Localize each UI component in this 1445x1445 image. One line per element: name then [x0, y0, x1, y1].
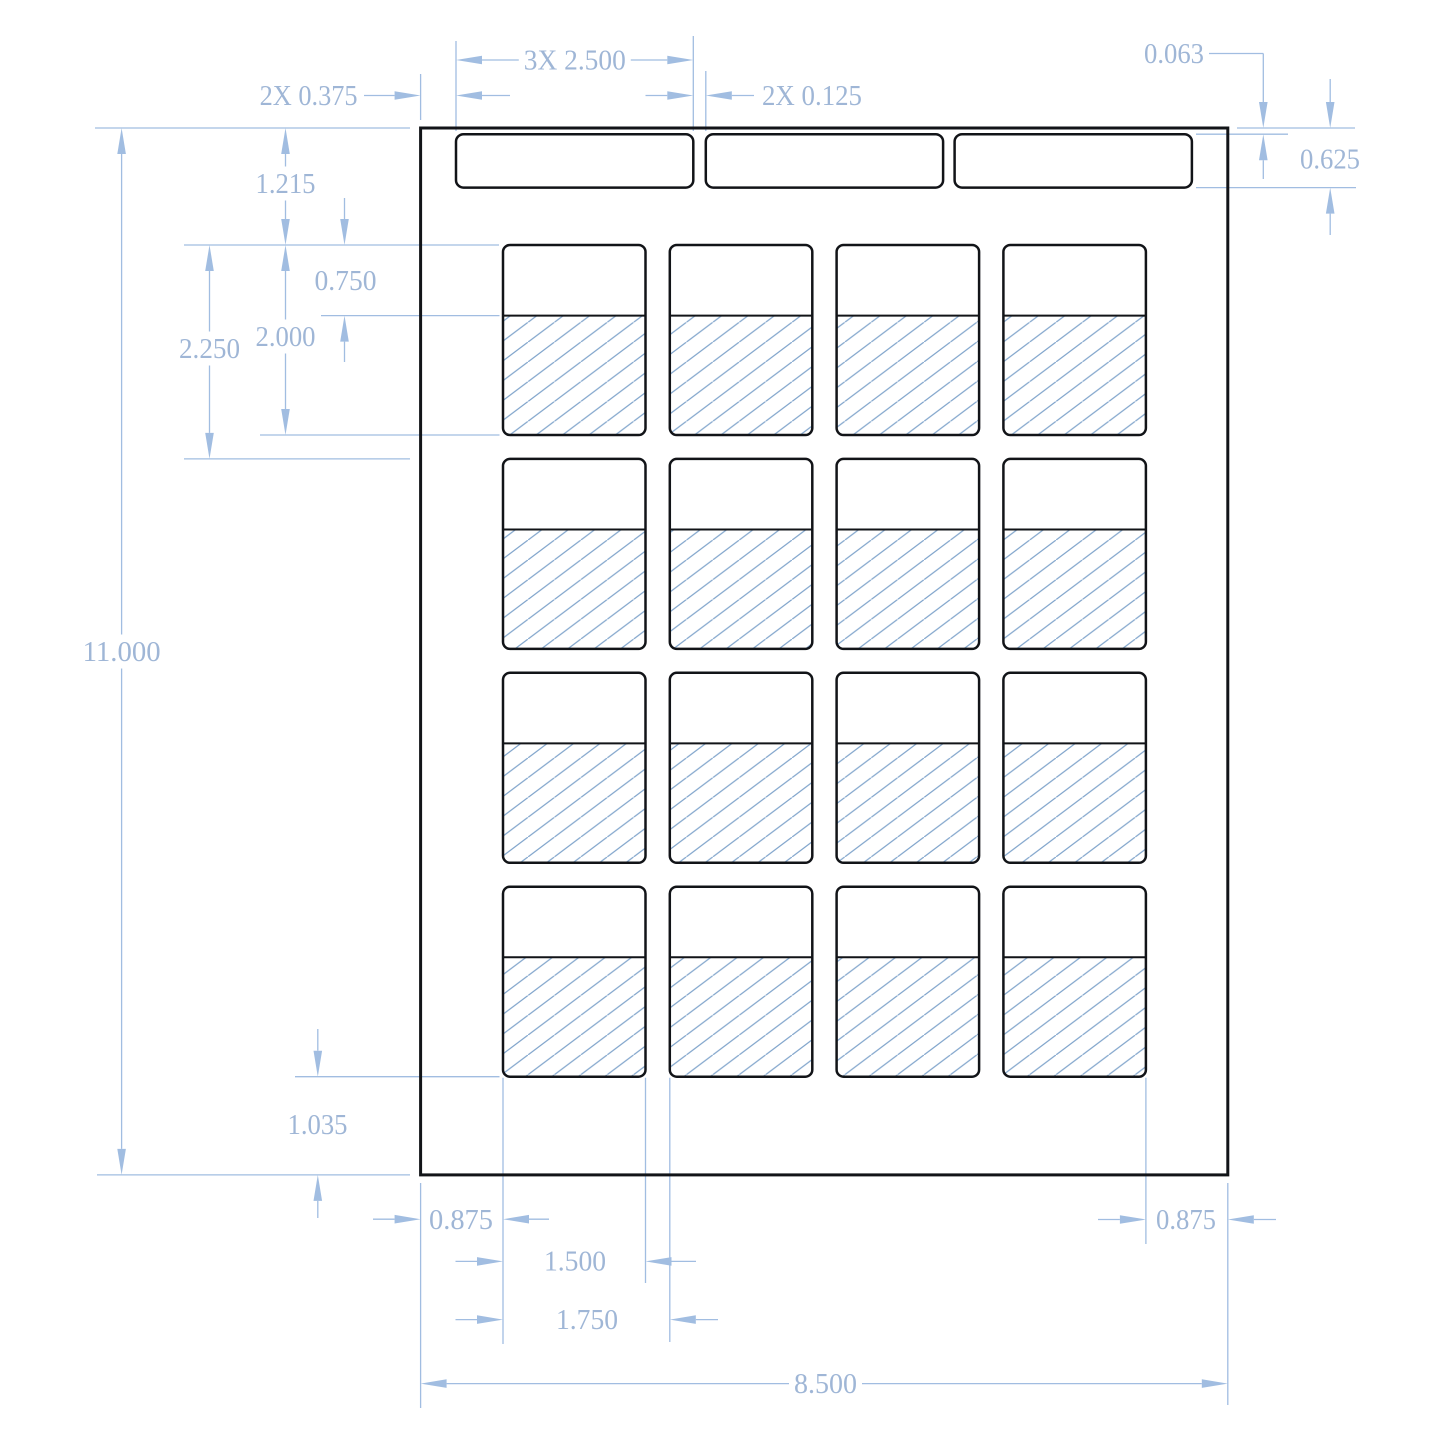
svg-text:0.750: 0.750: [315, 266, 377, 297]
svg-text:0.875: 0.875: [1156, 1205, 1216, 1236]
svg-text:11.000: 11.000: [83, 637, 161, 668]
svg-text:2X 0.375: 2X 0.375: [260, 81, 358, 112]
svg-text:1.750: 1.750: [556, 1305, 618, 1336]
svg-text:2.250: 2.250: [179, 334, 240, 365]
svg-text:2.000: 2.000: [256, 322, 316, 353]
svg-text:0.063: 0.063: [1144, 39, 1204, 70]
svg-text:1.500: 1.500: [544, 1246, 606, 1277]
svg-text:0.875: 0.875: [429, 1205, 493, 1236]
svg-text:2X 0.125: 2X 0.125: [762, 81, 862, 112]
svg-text:1.035: 1.035: [288, 1110, 348, 1141]
svg-text:3X 2.500: 3X 2.500: [524, 46, 626, 77]
svg-text:8.500: 8.500: [794, 1369, 857, 1400]
svg-text:1.215: 1.215: [256, 169, 316, 200]
svg-text:0.625: 0.625: [1300, 145, 1360, 176]
